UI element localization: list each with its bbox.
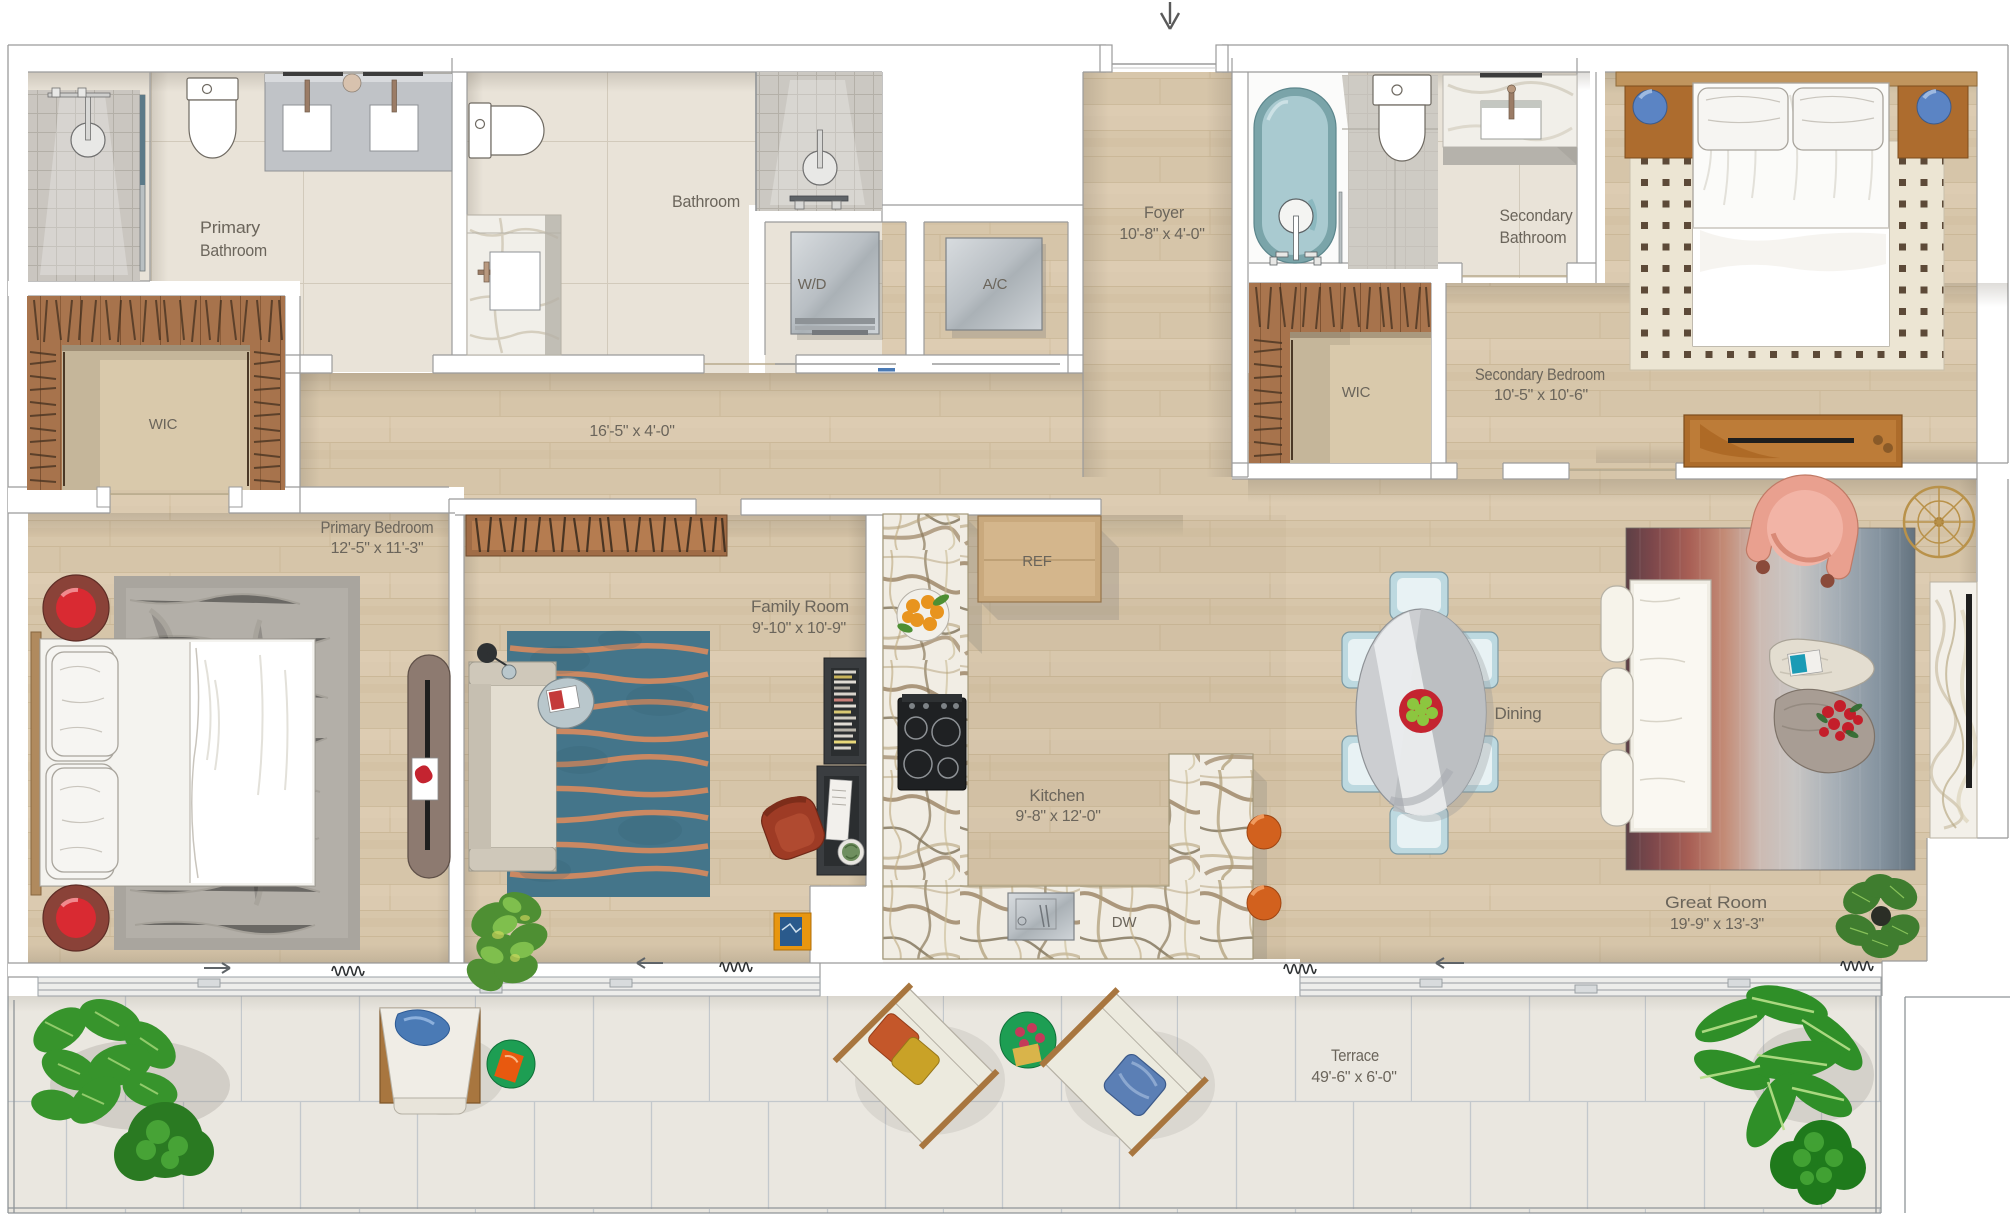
- svg-text:Dining: Dining: [1495, 704, 1542, 723]
- svg-text:Bathroom: Bathroom: [672, 192, 740, 211]
- svg-text:Secondary Bedroom: Secondary Bedroom: [1475, 365, 1605, 384]
- svg-text:REF: REF: [1022, 553, 1051, 570]
- svg-text:Foyer: Foyer: [1144, 203, 1184, 222]
- svg-text:12'-5" x 11'-3": 12'-5" x 11'-3": [331, 540, 424, 557]
- svg-text:Primary: Primary: [200, 218, 261, 237]
- svg-text:WIC: WIC: [1342, 384, 1371, 401]
- svg-text:Primary Bedroom: Primary Bedroom: [321, 518, 434, 537]
- svg-text:16'-5" x 4'-0": 16'-5" x 4'-0": [589, 423, 674, 440]
- svg-text:WIC: WIC: [149, 416, 178, 433]
- svg-text:A/C: A/C: [983, 276, 1008, 293]
- svg-text:19'-9" x 13'-3": 19'-9" x 13'-3": [1670, 916, 1764, 933]
- svg-text:Great Room: Great Room: [1665, 893, 1767, 912]
- svg-text:Kitchen: Kitchen: [1029, 786, 1084, 805]
- svg-text:Bathroom: Bathroom: [1500, 228, 1567, 247]
- svg-text:Family Room: Family Room: [751, 597, 849, 616]
- svg-text:10'-8" x 4'-0": 10'-8" x 4'-0": [1119, 226, 1204, 243]
- svg-text:DW: DW: [1112, 914, 1138, 931]
- svg-text:10'-5" x 10'-6": 10'-5" x 10'-6": [1494, 387, 1588, 404]
- svg-text:9'-10" x 10'-9": 9'-10" x 10'-9": [752, 620, 846, 637]
- svg-text:W/D: W/D: [798, 276, 827, 293]
- svg-text:Terrace: Terrace: [1331, 1046, 1379, 1065]
- svg-text:49'-6" x 6'-0": 49'-6" x 6'-0": [1311, 1069, 1396, 1086]
- svg-text:Secondary: Secondary: [1500, 206, 1574, 225]
- svg-text:9'-8" x 12'-0": 9'-8" x 12'-0": [1015, 808, 1100, 825]
- svg-text:Bathroom: Bathroom: [200, 241, 267, 260]
